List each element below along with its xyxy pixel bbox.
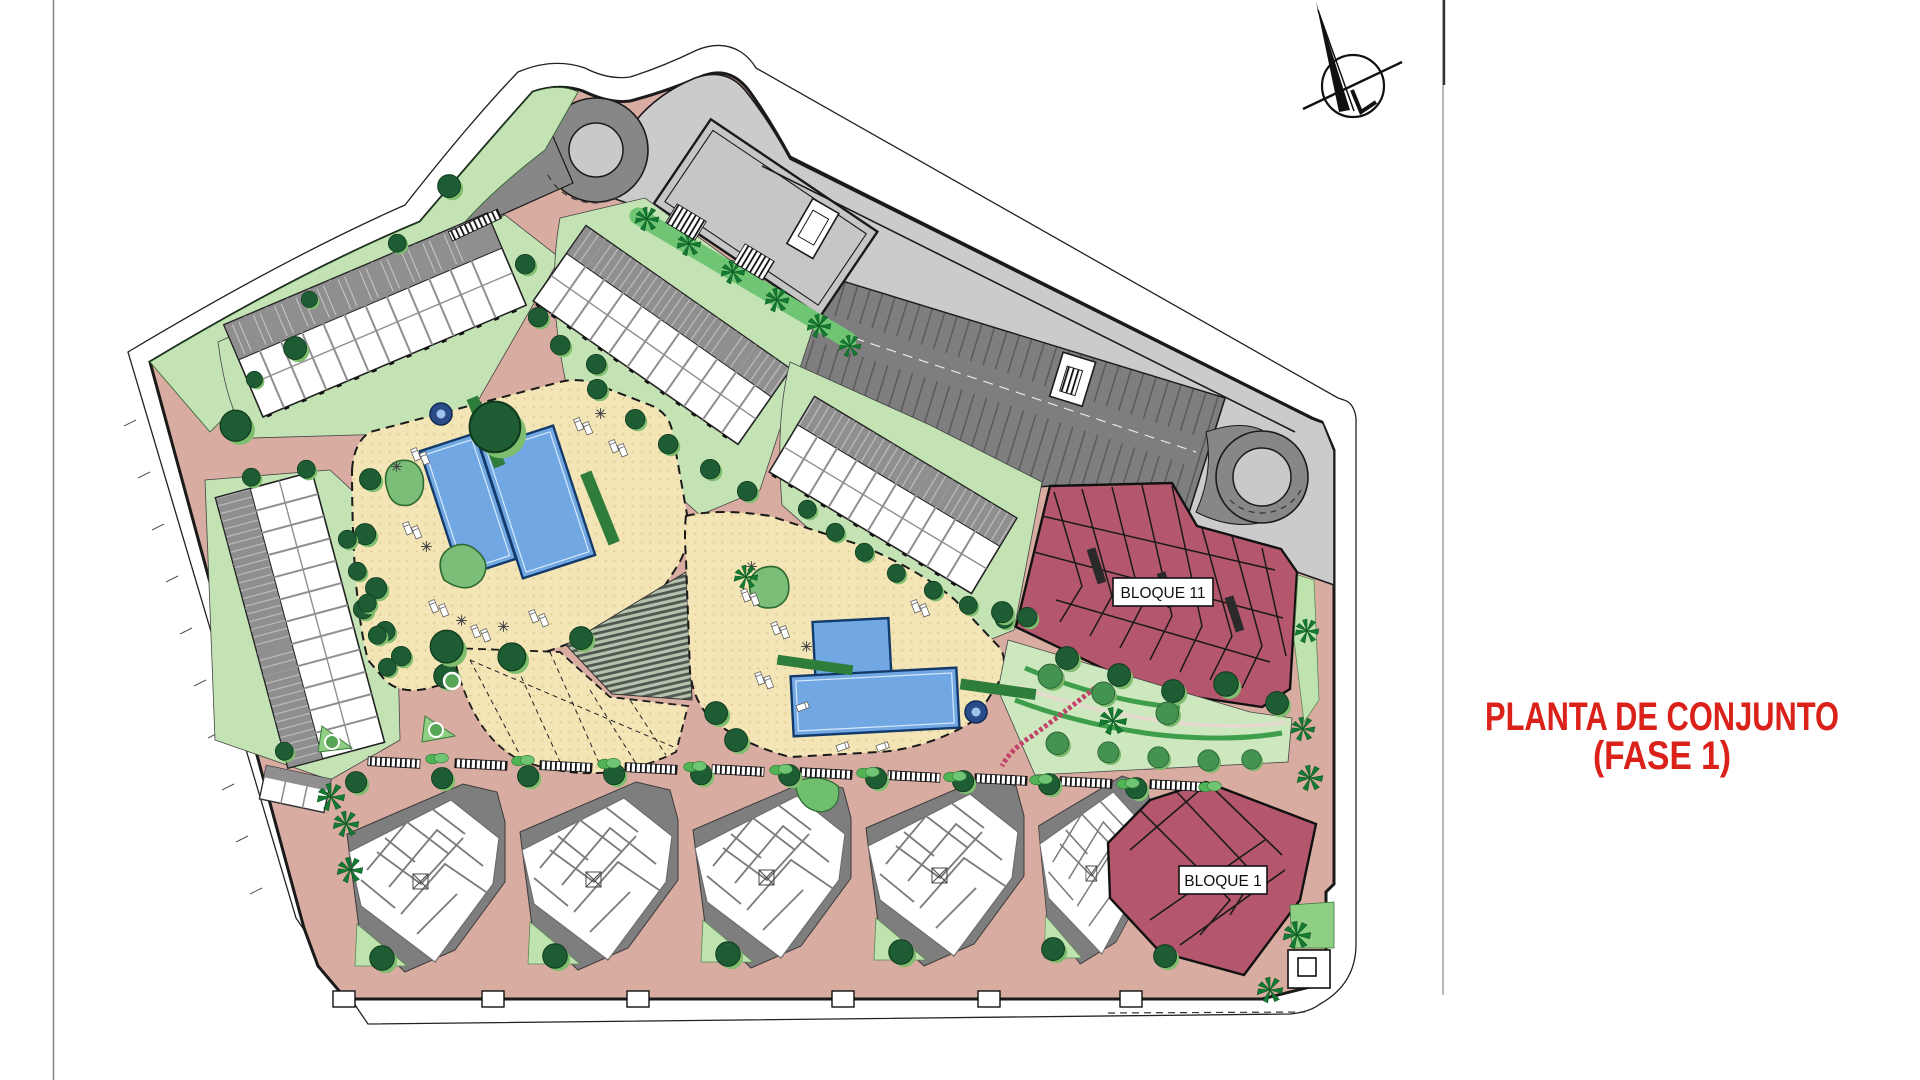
svg-text:BLOQUE 1: BLOQUE 1	[1184, 873, 1262, 890]
svg-text:(FASE 1): (FASE 1)	[1593, 734, 1731, 778]
svg-text:PLANTA DE CONJUNTO: PLANTA DE CONJUNTO	[1485, 695, 1839, 739]
svg-text:BLOQUE 11: BLOQUE 11	[1120, 585, 1205, 602]
